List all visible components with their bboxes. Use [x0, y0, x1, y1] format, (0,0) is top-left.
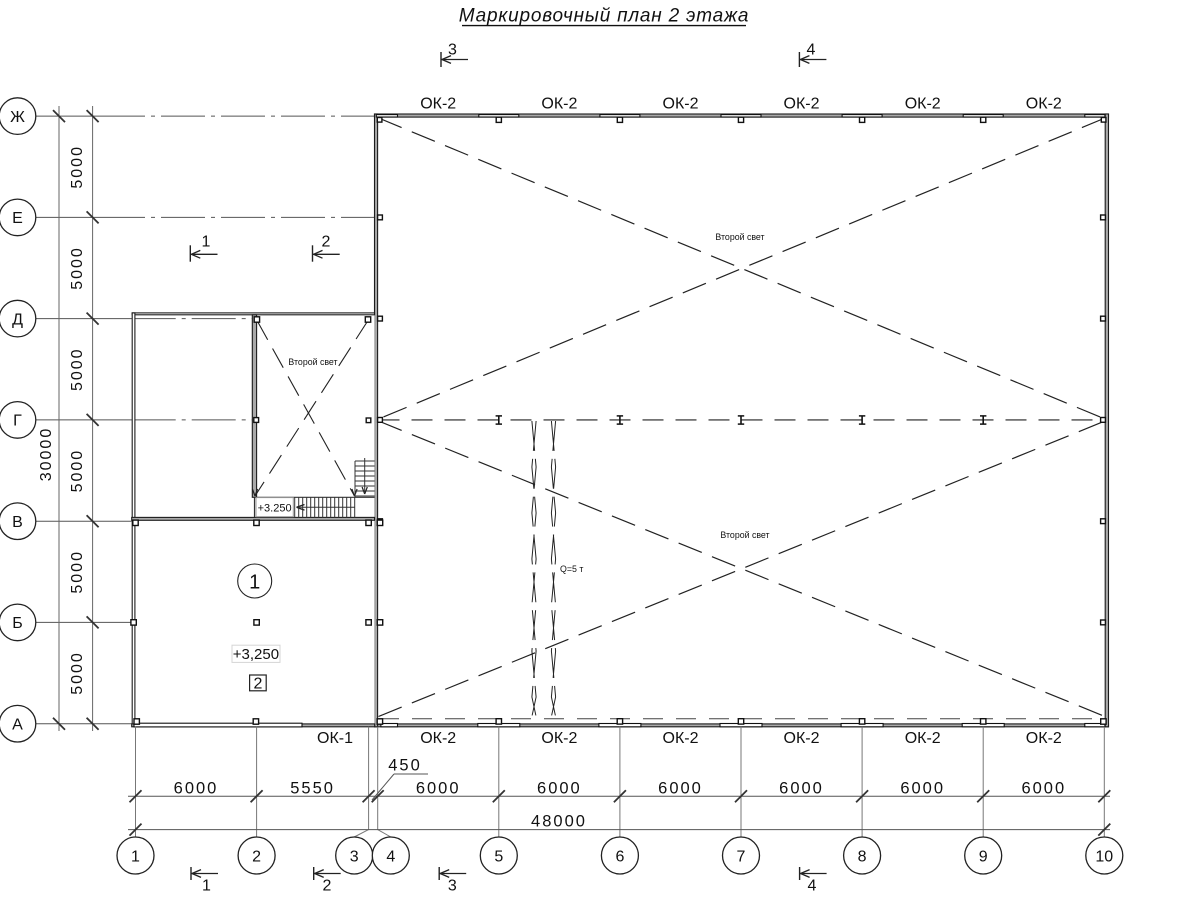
- svg-text:ОК-2: ОК-2: [541, 730, 577, 747]
- svg-text:6000: 6000: [658, 780, 703, 798]
- svg-text:А: А: [12, 717, 23, 734]
- svg-text:5000: 5000: [69, 145, 86, 189]
- svg-text:ОК-2: ОК-2: [420, 730, 456, 747]
- svg-text:6000: 6000: [779, 780, 824, 798]
- svg-text:5550: 5550: [290, 780, 335, 798]
- svg-text:3: 3: [350, 848, 359, 865]
- svg-text:6000: 6000: [537, 780, 582, 798]
- svg-text:+3.250: +3.250: [258, 502, 292, 514]
- svg-text:6: 6: [615, 848, 624, 865]
- svg-text:2: 2: [253, 676, 262, 693]
- svg-text:Маркировочный план 2 этажа: Маркировочный план 2 этажа: [459, 6, 749, 27]
- svg-text:5000: 5000: [69, 550, 86, 594]
- svg-text:Второй свет: Второй свет: [715, 232, 764, 242]
- svg-text:2: 2: [252, 848, 261, 865]
- svg-text:6000: 6000: [416, 780, 461, 798]
- svg-text:3: 3: [448, 877, 457, 894]
- svg-text:1: 1: [131, 848, 140, 865]
- svg-text:ОК-2: ОК-2: [784, 730, 820, 747]
- svg-text:ОК-2: ОК-2: [663, 730, 699, 747]
- svg-text:В: В: [12, 514, 23, 531]
- svg-text:1: 1: [202, 233, 211, 250]
- svg-text:4: 4: [808, 877, 817, 894]
- svg-text:2: 2: [323, 877, 332, 894]
- svg-text:ОК-2: ОК-2: [905, 730, 941, 747]
- svg-text:Е: Е: [12, 210, 23, 227]
- svg-text:5: 5: [494, 848, 503, 865]
- svg-text:ОК-2: ОК-2: [784, 96, 820, 113]
- svg-text:9: 9: [979, 848, 988, 865]
- svg-text:5000: 5000: [69, 651, 86, 695]
- svg-text:5000: 5000: [69, 347, 86, 391]
- svg-text:Д: Д: [12, 311, 23, 328]
- svg-text:6000: 6000: [174, 780, 219, 798]
- svg-text:6000: 6000: [900, 780, 945, 798]
- svg-text:Второй свет: Второй свет: [720, 530, 769, 540]
- svg-text:48000: 48000: [531, 812, 587, 830]
- svg-text:Ж: Ж: [10, 109, 25, 126]
- svg-text:30000: 30000: [38, 427, 55, 482]
- svg-text:Б: Б: [12, 615, 23, 632]
- svg-text:ОК-2: ОК-2: [1026, 730, 1062, 747]
- svg-text:2: 2: [322, 233, 331, 250]
- svg-text:ОК-2: ОК-2: [1026, 96, 1062, 113]
- svg-text:450: 450: [388, 757, 422, 775]
- svg-text:7: 7: [737, 848, 746, 865]
- svg-text:6000: 6000: [1021, 780, 1066, 798]
- svg-text:3: 3: [448, 42, 457, 59]
- svg-text:Q=5 т: Q=5 т: [560, 564, 583, 574]
- svg-text:ОК-2: ОК-2: [541, 96, 577, 113]
- svg-text:8: 8: [858, 848, 867, 865]
- svg-text:ОК-1: ОК-1: [317, 730, 353, 747]
- svg-text:+3,250: +3,250: [233, 646, 279, 663]
- svg-text:5000: 5000: [69, 246, 86, 290]
- svg-text:1: 1: [249, 571, 260, 593]
- svg-text:ОК-2: ОК-2: [905, 96, 941, 113]
- svg-text:ОК-2: ОК-2: [663, 96, 699, 113]
- svg-text:10: 10: [1095, 848, 1113, 865]
- svg-text:4: 4: [386, 848, 395, 865]
- svg-text:1: 1: [202, 877, 211, 894]
- svg-text:5000: 5000: [69, 449, 86, 493]
- svg-text:Второй свет: Второй свет: [288, 357, 337, 367]
- svg-text:ОК-2: ОК-2: [420, 96, 456, 113]
- svg-text:4: 4: [806, 42, 815, 59]
- svg-text:Г: Г: [13, 413, 22, 430]
